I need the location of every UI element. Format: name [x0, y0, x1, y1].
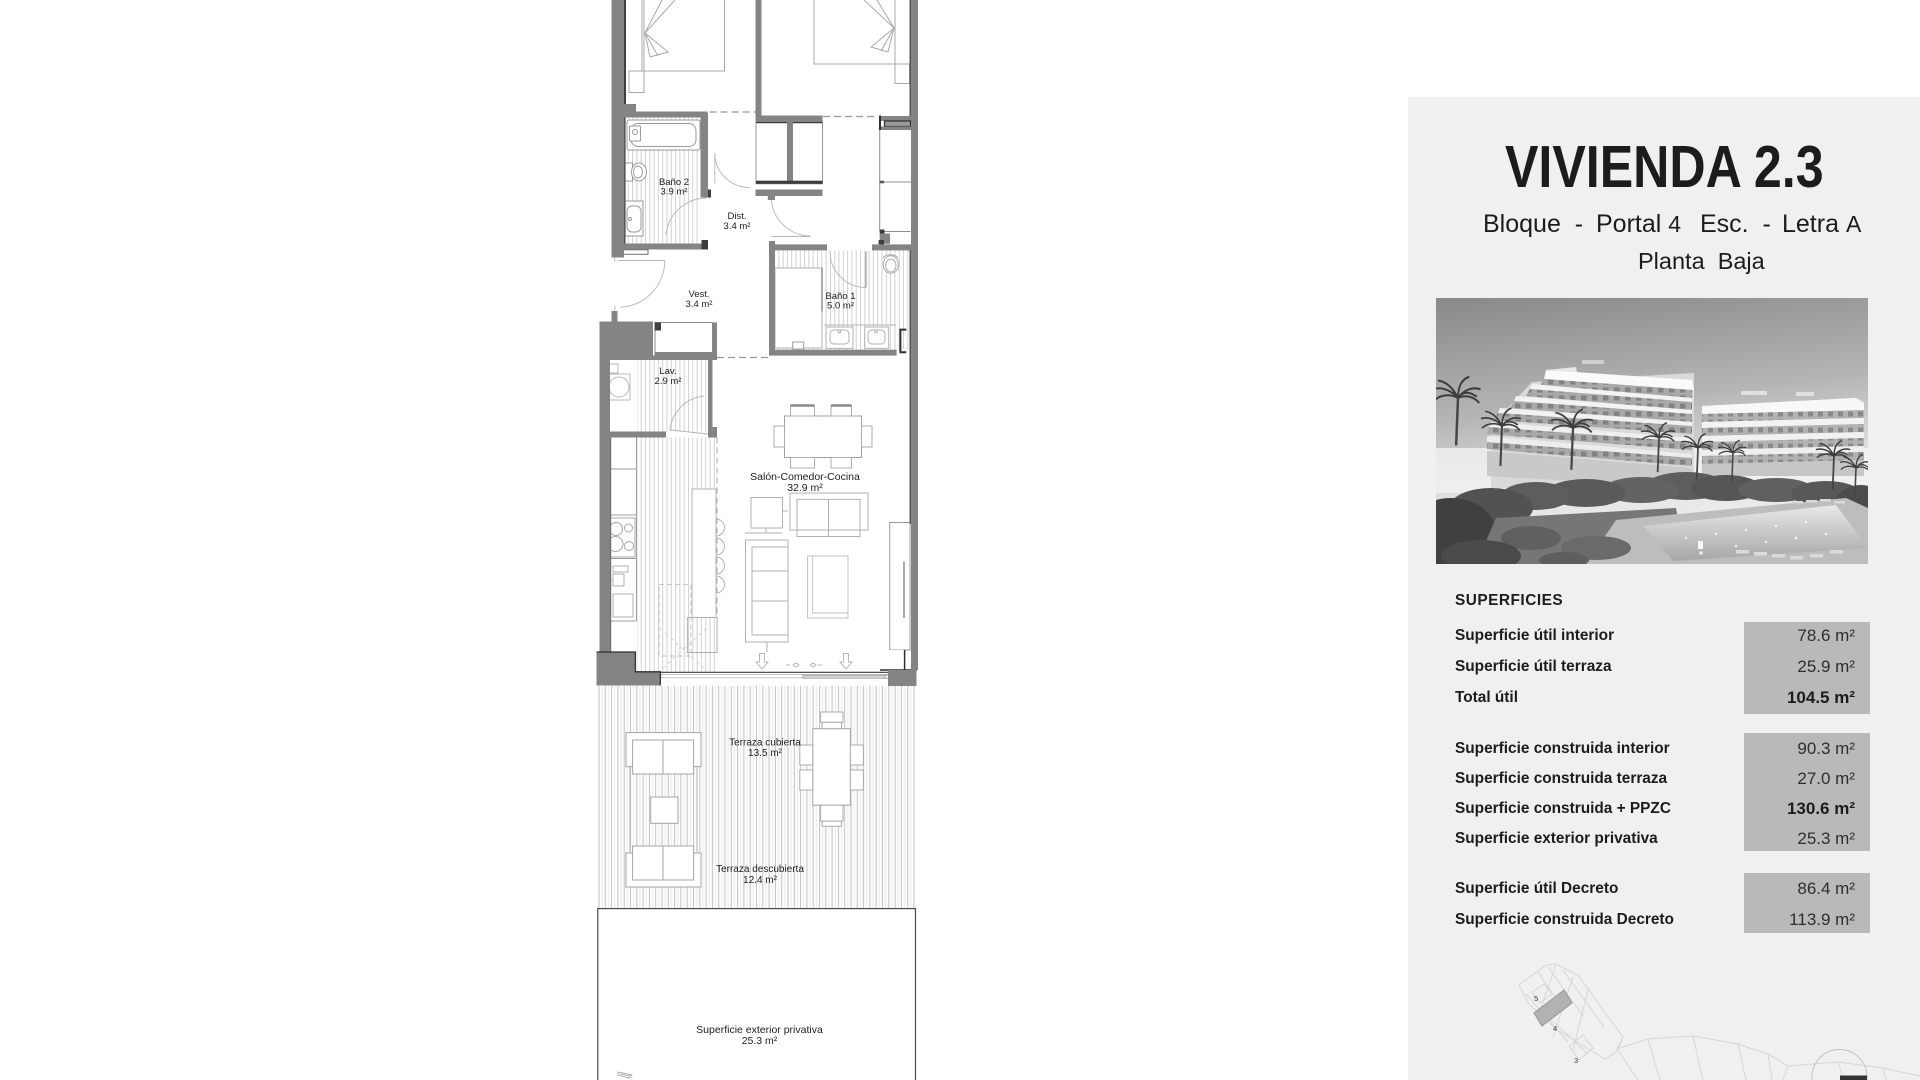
svg-text:4: 4 [1553, 1024, 1557, 1033]
svg-text:13.5 m²: 13.5 m² [748, 748, 783, 759]
svg-text:3.4 m²: 3.4 m² [724, 221, 751, 232]
svg-text:3.9 m²: 3.9 m² [661, 187, 688, 198]
svg-text:32.9 m²: 32.9 m² [787, 482, 823, 494]
svg-text:Terraza cubierta: Terraza cubierta [729, 738, 801, 749]
svg-text:Terraza descubierta: Terraza descubierta [716, 864, 804, 875]
svg-text:5.0 m²: 5.0 m² [827, 301, 854, 312]
svg-text:12.4 m²: 12.4 m² [743, 875, 778, 886]
svg-text:3.4 m²: 3.4 m² [686, 299, 713, 310]
svg-text:3: 3 [1574, 1056, 1578, 1065]
svg-text:2.9 m²: 2.9 m² [655, 376, 682, 387]
svg-text:25.3 m²: 25.3 m² [742, 1035, 778, 1047]
svg-text:5: 5 [1534, 994, 1538, 1003]
